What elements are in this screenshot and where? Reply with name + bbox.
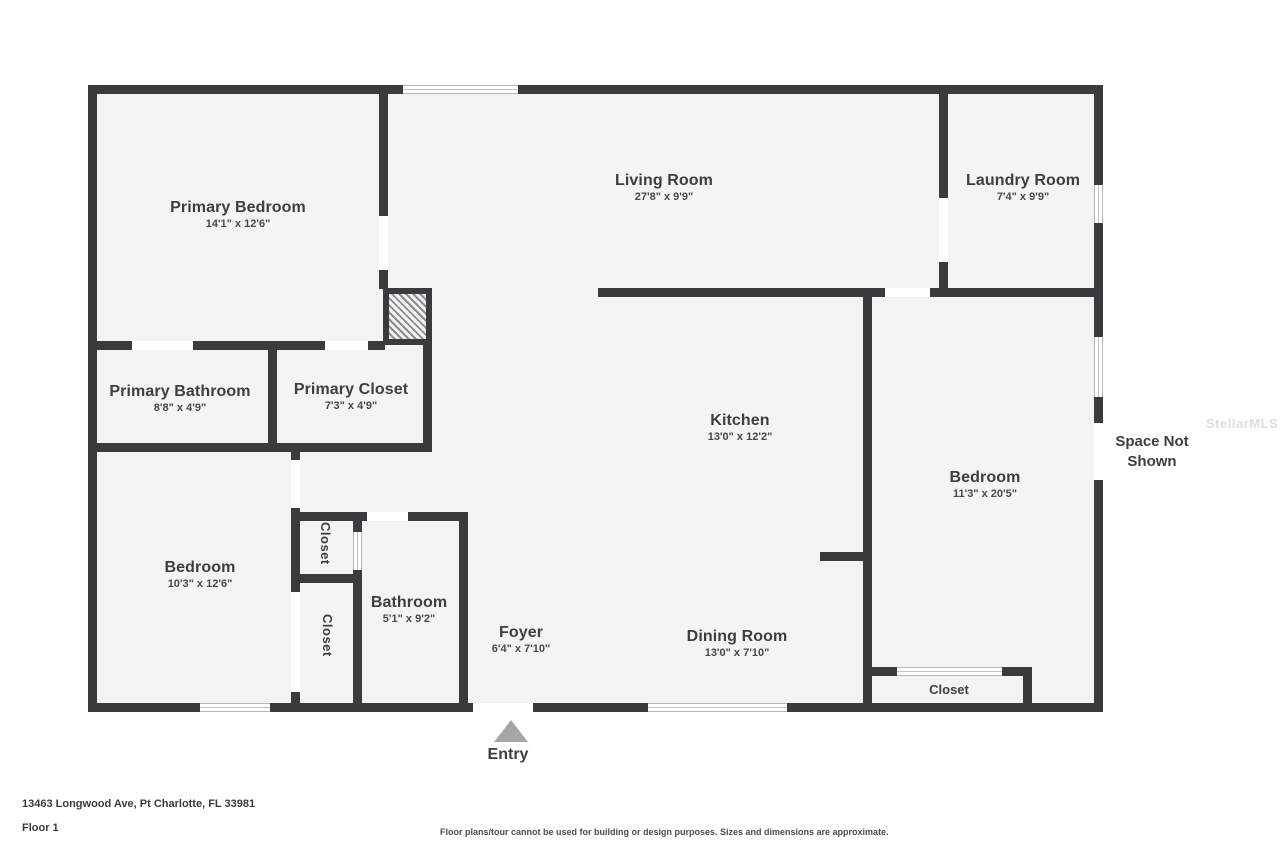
- closet-label-bedroom: Closet: [929, 682, 969, 697]
- entry-label: Entry: [488, 746, 529, 764]
- wall-segment: [459, 512, 468, 712]
- closet-slider-door: [897, 667, 1002, 676]
- window: [648, 703, 787, 712]
- entry-arrow-icon: [494, 720, 528, 742]
- room-dims: 7'3" x 4'9": [294, 399, 408, 414]
- room-name: Primary Bedroom: [170, 199, 306, 217]
- door-opening: [367, 512, 408, 521]
- room-name: Living Room: [615, 172, 713, 190]
- space-not-shown-label: Space Not Shown: [1093, 432, 1211, 472]
- room-dims: 11'3" x 20'5": [950, 487, 1021, 502]
- room-label-dining-room: Dining Room 13'0" x 7'10": [687, 628, 788, 661]
- door-opening: [885, 288, 930, 297]
- wall-segment: [939, 85, 948, 297]
- wall-segment: [863, 288, 872, 712]
- room-label-bedroom-left: Bedroom 10'3" x 12'6": [165, 559, 236, 592]
- room-name: Kitchen: [708, 412, 773, 430]
- wall-segment: [598, 288, 885, 297]
- room-name: Bedroom: [950, 469, 1021, 487]
- wall-segment: [820, 552, 863, 561]
- window: [1094, 337, 1103, 397]
- room-name: Primary Bathroom: [109, 383, 250, 401]
- door-opening: [291, 460, 300, 508]
- wall-segment: [353, 583, 362, 712]
- door-opening: [291, 592, 300, 692]
- window: [403, 85, 518, 94]
- room-dims: 5'1" x 9'2": [371, 612, 447, 627]
- closet-label-upper: Closet: [318, 522, 333, 565]
- room-dims: 13'0" x 7'10": [687, 646, 788, 661]
- room-label-primary-closet: Primary Closet 7'3" x 4'9": [294, 381, 408, 414]
- room-label-foyer: Foyer 6'4" x 7'10": [492, 624, 550, 657]
- wall-segment: [88, 85, 1103, 94]
- room-label-bathroom: Bathroom 5'1" x 9'2": [371, 594, 447, 627]
- wall-segment: [930, 288, 1103, 297]
- room-label-living-room: Living Room 27'8" x 9'9": [615, 172, 713, 205]
- disclaimer-text: Floor plans/tour cannot be used for buil…: [440, 827, 889, 837]
- wall-segment: [1094, 85, 1103, 712]
- wall-segment: [88, 443, 432, 452]
- room-name: Bathroom: [371, 594, 447, 612]
- door-opening: [939, 198, 948, 262]
- closet-label-lower: Closet: [320, 614, 335, 657]
- window: [1094, 185, 1103, 223]
- room-label-laundry-room: Laundry Room 7'4" x 9'9": [966, 172, 1080, 205]
- room-label-bedroom-right: Bedroom 11'3" x 20'5": [950, 469, 1021, 502]
- room-dims: 13'0" x 12'2": [708, 430, 773, 445]
- entry-door-opening: [473, 703, 533, 712]
- room-dims: 27'8" x 9'9": [615, 190, 713, 205]
- room-name: Primary Closet: [294, 381, 408, 399]
- wall-segment: [423, 345, 432, 452]
- room-dims: 8'8" x 4'9": [109, 401, 250, 416]
- door-opening: [325, 341, 368, 350]
- room-name: Foyer: [492, 624, 550, 642]
- hatched-area: [383, 288, 432, 345]
- room-name: Dining Room: [687, 628, 788, 646]
- door-opening: [379, 216, 388, 270]
- room-dims: 10'3" x 12'6": [165, 577, 236, 592]
- wall-segment: [291, 512, 362, 521]
- room-dims: 14'1" x 12'6": [170, 217, 306, 232]
- room-label-primary-bathroom: Primary Bathroom 8'8" x 4'9": [109, 383, 250, 416]
- wall-segment: [291, 574, 362, 583]
- room-label-kitchen: Kitchen 13'0" x 12'2": [708, 412, 773, 445]
- window: [200, 703, 270, 712]
- door-opening: [132, 341, 193, 350]
- room-name: Bedroom: [165, 559, 236, 577]
- wall-segment: [88, 85, 97, 712]
- room-label-primary-bedroom: Primary Bedroom 14'1" x 12'6": [170, 199, 306, 232]
- wall-segment: [872, 667, 897, 676]
- closet-door: [353, 532, 362, 570]
- address-text: 13463 Longwood Ave, Pt Charlotte, FL 339…: [22, 798, 255, 810]
- room-name: Laundry Room: [966, 172, 1080, 190]
- wall-segment: [268, 341, 277, 452]
- room-dims: 6'4" x 7'10": [492, 642, 550, 657]
- floor-number-text: Floor 1: [22, 822, 59, 834]
- floor-plan-page: Primary Bedroom 14'1" x 12'6" Living Roo…: [0, 0, 1280, 852]
- watermark: StellarMLS: [1206, 416, 1278, 431]
- room-dims: 7'4" x 9'9": [966, 190, 1080, 205]
- wall-segment: [1023, 667, 1032, 712]
